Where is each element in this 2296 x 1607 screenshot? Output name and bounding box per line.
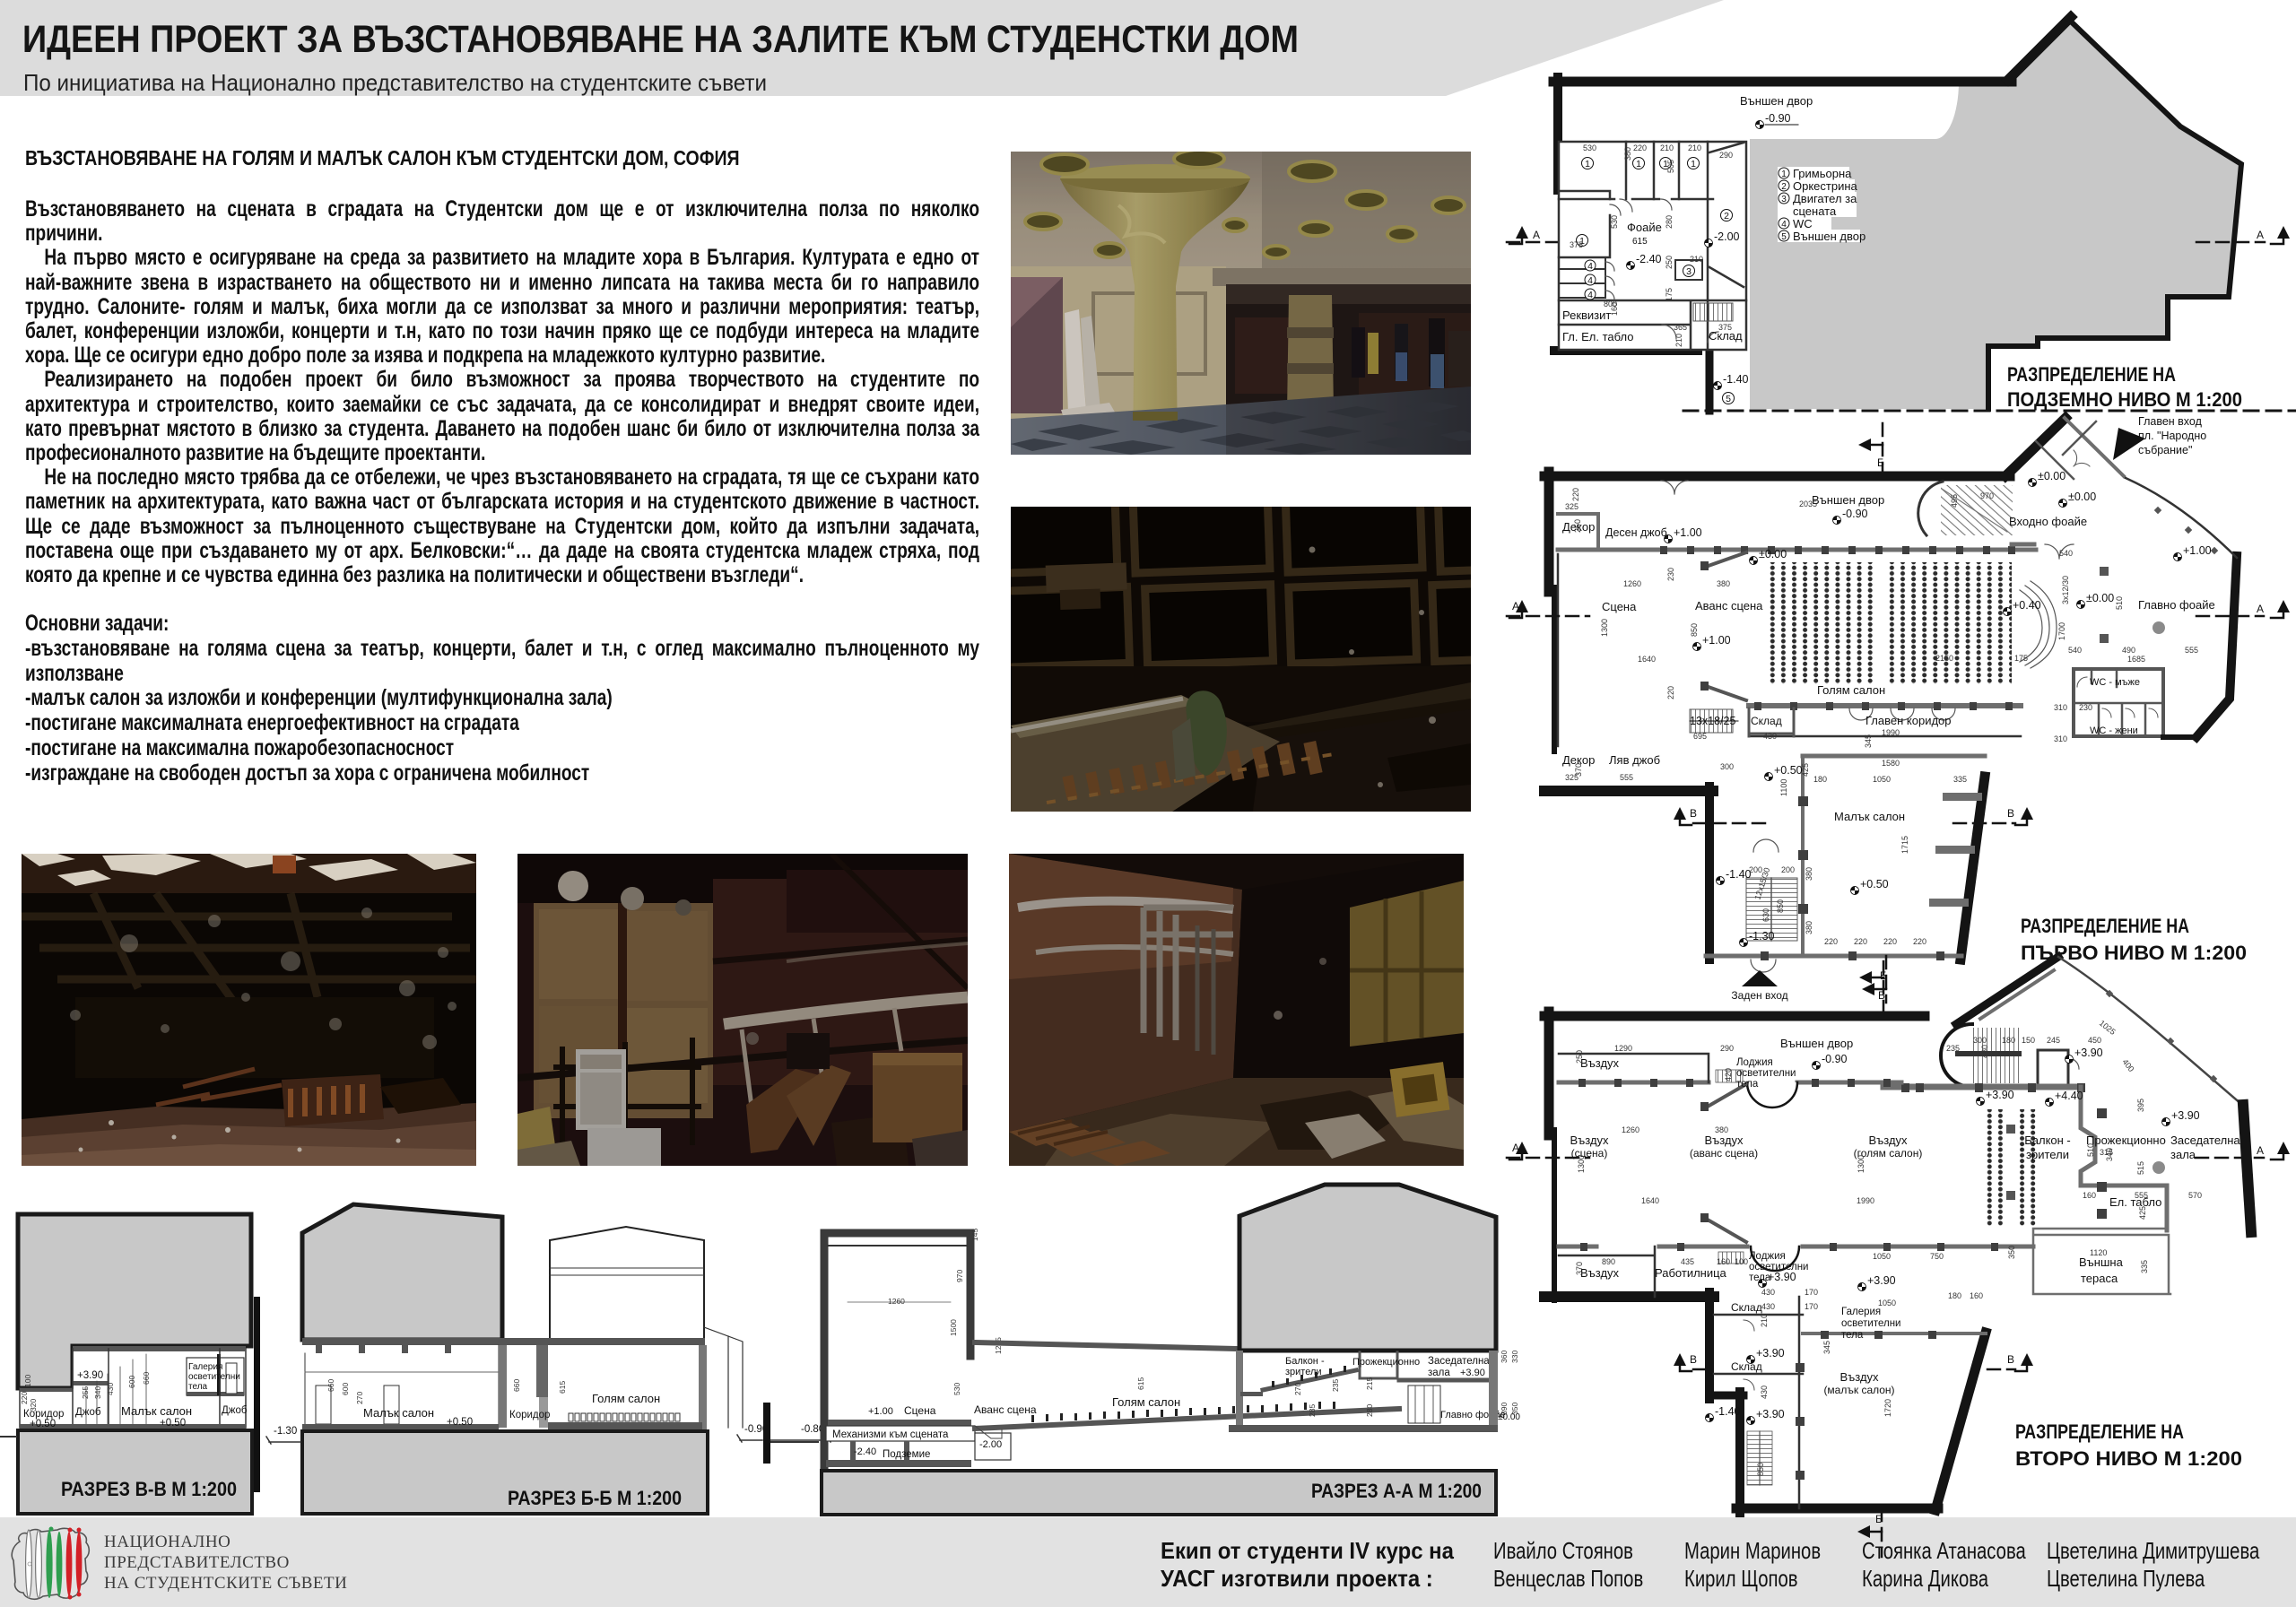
- svg-text:1120: 1120: [2090, 1248, 2107, 1257]
- svg-text:2150: 2150: [1935, 654, 1953, 663]
- svg-text:+3.90: +3.90: [2171, 1109, 2200, 1122]
- svg-text:±0.00: ±0.00: [2038, 470, 2066, 482]
- svg-text:-0.90: -0.90: [1765, 112, 1791, 125]
- svg-text:335: 335: [2140, 1260, 2149, 1273]
- svg-text:230: 230: [1666, 568, 1675, 581]
- svg-text:Коридор: Коридор: [509, 1410, 550, 1420]
- svg-text:750: 750: [1930, 1252, 1944, 1261]
- svg-text:Сцена: Сцена: [904, 1404, 936, 1417]
- svg-text:сцената: сцената: [1793, 204, 1837, 218]
- svg-text:Заден вход: Заден вход: [1731, 989, 1787, 1002]
- svg-text:1300: 1300: [1577, 1155, 1586, 1173]
- svg-text:+3.90: +3.90: [1867, 1274, 1896, 1287]
- svg-text:370: 370: [1575, 1262, 1584, 1275]
- svg-text:245: 245: [2047, 1036, 2060, 1045]
- svg-text:Въздух: Въздух: [1570, 1134, 1609, 1147]
- svg-text:Лоджия: Лоджия: [1736, 1057, 1773, 1068]
- svg-text:600: 600: [127, 1376, 136, 1388]
- svg-text:1260: 1260: [888, 1297, 905, 1306]
- svg-text:РАЗРЕЗ Б-Б М 1:200: РАЗРЕЗ Б-Б М 1:200: [508, 1487, 682, 1509]
- svg-text:Сцена: Сцена: [1602, 600, 1637, 613]
- svg-text:Склад: Склад: [1731, 1301, 1762, 1314]
- svg-text:290: 290: [1720, 1044, 1734, 1053]
- svg-text:Гл. Ел. табло: Гл. Ел. табло: [1562, 330, 1633, 343]
- svg-text:2: 2: [1724, 211, 1729, 222]
- svg-text:300: 300: [1720, 762, 1734, 771]
- svg-text:1990: 1990: [1857, 1196, 1874, 1205]
- svg-text:180: 180: [2002, 1036, 2015, 1045]
- svg-text:210: 210: [1688, 143, 1701, 152]
- svg-text:+3.90: +3.90: [1460, 1368, 1485, 1378]
- svg-text:615: 615: [558, 1381, 567, 1394]
- svg-text:890: 890: [1602, 1257, 1615, 1266]
- svg-text:270: 270: [355, 1392, 364, 1404]
- svg-text:осветителни: осветителни: [1841, 1318, 1900, 1329]
- svg-text:330: 330: [1510, 1351, 1519, 1363]
- svg-text:510: 510: [2115, 596, 2124, 610]
- svg-text:540: 540: [2059, 549, 2073, 558]
- svg-text:4: 4: [1587, 261, 1593, 272]
- svg-text:Заседателна: Заседателна: [1428, 1356, 1490, 1367]
- svg-text:200: 200: [1781, 865, 1795, 874]
- svg-text:Прожекционно: Прожекционно: [1352, 1357, 1420, 1368]
- svg-text:430: 430: [1761, 1288, 1775, 1297]
- svg-text:160: 160: [1717, 1257, 1730, 1266]
- svg-text:4: 4: [1587, 290, 1593, 300]
- svg-text:280: 280: [1665, 215, 1674, 229]
- svg-text:430: 430: [1760, 1385, 1769, 1399]
- svg-text:+0.50: +0.50: [160, 1418, 186, 1429]
- svg-text:-1.40: -1.40: [1726, 868, 1752, 881]
- svg-text:220: 220: [1824, 937, 1838, 946]
- svg-text:Фоайе: Фоайе: [1627, 221, 1662, 234]
- svg-text:Външен двор: Външен двор: [1740, 94, 1813, 108]
- svg-text:850: 850: [1776, 899, 1785, 913]
- svg-text:395: 395: [2136, 1099, 2145, 1112]
- svg-text:WC - мъже: WC - мъже: [2090, 677, 2140, 688]
- svg-text:220: 220: [1633, 143, 1647, 152]
- svg-text:4: 4: [1781, 220, 1787, 230]
- svg-text:570: 570: [2188, 1191, 2202, 1200]
- svg-text:160: 160: [1610, 302, 1619, 316]
- svg-text:285: 285: [1308, 1404, 1317, 1417]
- svg-text:Главен коридор: Главен коридор: [1865, 714, 1952, 727]
- svg-text:±0.00: ±0.00: [1759, 548, 1787, 560]
- svg-text:Въздух: Въздух: [1580, 1266, 1620, 1280]
- svg-text:220: 220: [1883, 937, 1897, 946]
- svg-text:170: 170: [1805, 1288, 1818, 1297]
- svg-text:+1.00: +1.00: [2183, 544, 2212, 557]
- svg-text:350: 350: [2007, 1246, 2016, 1259]
- svg-text:310: 310: [2054, 703, 2067, 712]
- svg-text:Десен джоб: Десен джоб: [1605, 526, 1667, 539]
- svg-text:380: 380: [1805, 867, 1813, 881]
- svg-text:555: 555: [2135, 1191, 2148, 1200]
- svg-text:А: А: [2257, 229, 2264, 241]
- svg-text:345: 345: [1864, 734, 1873, 748]
- svg-text:220: 220: [1854, 937, 1867, 946]
- svg-text:Голям салон: Голям салон: [1817, 683, 1885, 697]
- svg-text:(малък салон): (малък салон): [1823, 1384, 1894, 1396]
- svg-text:1640: 1640: [1638, 655, 1656, 664]
- svg-text:310: 310: [2054, 734, 2067, 743]
- svg-text:375: 375: [1570, 240, 1583, 249]
- svg-text:зрители: зрители: [1285, 1367, 1322, 1377]
- svg-text:430: 430: [106, 1383, 115, 1395]
- svg-text:-2.40: -2.40: [854, 1446, 876, 1457]
- svg-text:Балкон -: Балкон -: [1285, 1356, 1325, 1367]
- svg-text:зала: зала: [2170, 1148, 2196, 1161]
- svg-text:375: 375: [1718, 323, 1732, 332]
- svg-text:осветителни: осветителни: [1736, 1068, 1796, 1079]
- svg-text:+3.90: +3.90: [1756, 1347, 1785, 1359]
- svg-text:1290: 1290: [1614, 1044, 1632, 1053]
- svg-text:РАЗРЕЗ А-А М 1:200: РАЗРЕЗ А-А М 1:200: [1311, 1480, 1482, 1502]
- svg-text:1050: 1050: [1873, 775, 1891, 784]
- svg-text:тела: тела: [1841, 1330, 1864, 1341]
- svg-text:1100: 1100: [1779, 779, 1788, 796]
- svg-text:210: 210: [1674, 334, 1683, 347]
- svg-text:РАЗПРЕДЕЛЕНИЕ НА: РАЗПРЕДЕЛЕНИЕ НА: [2007, 363, 2176, 386]
- svg-text:А: А: [2257, 603, 2264, 615]
- svg-text:Оркестрина: Оркестрина: [1793, 179, 1858, 193]
- svg-text:230: 230: [2079, 703, 2092, 712]
- svg-text:1050: 1050: [1873, 1252, 1891, 1261]
- svg-text:695: 695: [1693, 732, 1707, 741]
- svg-text:970: 970: [1980, 491, 1994, 500]
- svg-text:-1.30: -1.30: [1749, 930, 1775, 942]
- svg-text:-1.30: -1.30: [274, 1426, 297, 1437]
- svg-text:Галерия: Галерия: [188, 1362, 222, 1372]
- svg-text:660: 660: [512, 1379, 521, 1392]
- svg-text:365: 365: [1674, 323, 1687, 332]
- svg-text:зрители: зрители: [2026, 1148, 2069, 1161]
- svg-text:300: 300: [1973, 1036, 1987, 1045]
- svg-text:1700: 1700: [2057, 622, 2066, 640]
- svg-text:Външен двор: Външен двор: [1812, 493, 1884, 507]
- svg-text:1300: 1300: [1857, 1155, 1865, 1173]
- svg-text:Гримьорна: Гримьорна: [1793, 167, 1852, 180]
- svg-text:-0.90: -0.90: [1822, 1053, 1848, 1065]
- svg-text:ВТОРО НИВО М 1:200: ВТОРО НИВО М 1:200: [2015, 1447, 2242, 1470]
- svg-text:255: 255: [81, 1386, 90, 1399]
- svg-text:+0.40: +0.40: [2013, 599, 2041, 612]
- svg-text:Голям салон: Голям салон: [1112, 1395, 1180, 1409]
- svg-text:380: 380: [1623, 147, 1632, 161]
- svg-text:660: 660: [142, 1372, 151, 1385]
- svg-text:+1.00: +1.00: [1674, 526, 1702, 539]
- svg-text:В: В: [2007, 807, 2014, 820]
- svg-text:970: 970: [955, 1270, 964, 1282]
- svg-text:425: 425: [1801, 763, 1810, 777]
- svg-text:340: 340: [2105, 1148, 2114, 1161]
- svg-text:380: 380: [1715, 1125, 1728, 1134]
- svg-text:Галерия: Галерия: [1841, 1307, 1881, 1317]
- svg-text:Б: Б: [1877, 456, 1884, 469]
- svg-text:515: 515: [2136, 1161, 2145, 1175]
- svg-text:555: 555: [2185, 646, 2198, 655]
- svg-text:170: 170: [1805, 1302, 1818, 1311]
- svg-text:Работилница: Работилница: [1655, 1266, 1727, 1280]
- svg-text:+3.90: +3.90: [1756, 1408, 1785, 1420]
- svg-text:Малък салон: Малък салон: [363, 1406, 434, 1420]
- svg-text:540: 540: [2068, 646, 2082, 655]
- svg-text:-1.40: -1.40: [1723, 373, 1749, 386]
- svg-text:505: 505: [1666, 160, 1675, 173]
- svg-text:340: 340: [93, 1386, 102, 1399]
- svg-text:+0.50: +0.50: [447, 1417, 473, 1428]
- svg-text:събрание": събрание": [2138, 444, 2192, 456]
- svg-text:Аванс сцена: Аванс сцена: [1695, 599, 1763, 612]
- svg-text:1260: 1260: [1623, 579, 1641, 588]
- svg-text:495: 495: [1950, 494, 1959, 508]
- svg-text:1640: 1640: [1641, 1196, 1659, 1205]
- svg-text:Реквизит: Реквизит: [1562, 308, 1611, 322]
- svg-text:350: 350: [1510, 1403, 1519, 1415]
- svg-text:+1.00: +1.00: [1702, 634, 1731, 647]
- svg-text:зала: зала: [1428, 1368, 1450, 1378]
- svg-text:Аванс сцена: Аванс сцена: [974, 1403, 1037, 1416]
- svg-text:тела: тела: [188, 1382, 208, 1392]
- svg-text:345: 345: [1822, 1341, 1831, 1354]
- svg-text:325: 325: [1565, 502, 1578, 511]
- svg-text:435: 435: [1681, 1257, 1694, 1266]
- svg-text:1685: 1685: [2127, 655, 2145, 664]
- svg-text:530: 530: [1583, 143, 1596, 152]
- svg-text:Въздух: Въздух: [1580, 1056, 1620, 1070]
- svg-text:290: 290: [1719, 151, 1733, 160]
- svg-text:осветителни: осветителни: [188, 1372, 240, 1382]
- svg-text:1025: 1025: [2098, 1019, 2118, 1037]
- svg-text:+4.40: +4.40: [2055, 1090, 2083, 1102]
- svg-text:400: 400: [2120, 1057, 2135, 1073]
- svg-text:Ляв джоб: Ляв джоб: [1609, 753, 1660, 767]
- svg-text:пл. "Народно: пл. "Народно: [2138, 430, 2206, 442]
- svg-text:145: 145: [970, 1229, 979, 1241]
- svg-text:220: 220: [1913, 937, 1926, 946]
- svg-text:В: В: [2007, 1353, 2014, 1366]
- svg-text:РАЗРЕЗ В-В М 1:200: РАЗРЕЗ В-В М 1:200: [61, 1478, 237, 1500]
- svg-text:380: 380: [1805, 921, 1813, 934]
- svg-text:215: 215: [1365, 1377, 1374, 1390]
- svg-text:210: 210: [1760, 1314, 1769, 1327]
- svg-text:160: 160: [2083, 1191, 2096, 1200]
- svg-text:В: В: [1690, 1353, 1697, 1366]
- svg-text:210: 210: [1660, 143, 1674, 152]
- svg-text:Склад: Склад: [1751, 715, 1782, 727]
- svg-text:Б: Б: [1875, 1513, 1883, 1525]
- svg-text:555: 555: [1620, 773, 1633, 782]
- svg-text:320: 320: [29, 1399, 38, 1412]
- svg-text:осветителни: осветителни: [1749, 1262, 1808, 1273]
- svg-text:370: 370: [1574, 763, 1583, 777]
- svg-text:Въздух: Въздух: [1839, 1370, 1879, 1384]
- svg-text:Двигател за: Двигател за: [1793, 192, 1857, 205]
- svg-text:Подземие: Подземие: [883, 1449, 930, 1460]
- svg-text:510: 510: [2086, 1143, 2095, 1157]
- svg-text:180: 180: [1948, 1291, 1961, 1300]
- svg-text:±0.00: ±0.00: [2086, 592, 2114, 604]
- svg-text:(аванс сцена): (аванс сцена): [1690, 1147, 1758, 1160]
- svg-text:А: А: [1512, 1142, 1519, 1154]
- svg-text:270: 270: [1293, 1383, 1302, 1395]
- svg-text:тела: тела: [1749, 1273, 1771, 1283]
- svg-text:430: 430: [1763, 732, 1777, 741]
- svg-text:+1.00: +1.00: [868, 1406, 893, 1417]
- svg-text:530: 530: [952, 1383, 961, 1395]
- svg-text:А: А: [1512, 600, 1519, 612]
- svg-text:3: 3: [1781, 195, 1787, 204]
- svg-text:175: 175: [1665, 288, 1674, 301]
- svg-text:235: 235: [1331, 1379, 1340, 1392]
- svg-text:5: 5: [1781, 232, 1787, 242]
- svg-text:Джоб: Джоб: [222, 1405, 248, 1416]
- svg-text:Външна: Външна: [2079, 1255, 2124, 1269]
- svg-text:600: 600: [341, 1383, 350, 1395]
- svg-text:210: 210: [1690, 255, 1703, 264]
- svg-text:335: 335: [1953, 775, 1967, 784]
- svg-text:1050: 1050: [1878, 1299, 1896, 1307]
- svg-text:1: 1: [1691, 159, 1696, 169]
- svg-text:430: 430: [1761, 1302, 1775, 1311]
- svg-text:425: 425: [2138, 1206, 2147, 1220]
- svg-text:850: 850: [1690, 623, 1699, 637]
- svg-text:420: 420: [1724, 1068, 1733, 1081]
- svg-text:850: 850: [1756, 1463, 1765, 1476]
- svg-text:1: 1: [1585, 159, 1590, 169]
- svg-text:1: 1: [1636, 159, 1641, 169]
- svg-text:Лоджия: Лоджия: [1749, 1251, 1786, 1262]
- svg-text:2035: 2035: [1799, 499, 1817, 508]
- svg-text:1500: 1500: [949, 1319, 958, 1336]
- svg-text:Малък салон: Малък салон: [1834, 810, 1905, 823]
- svg-text:250: 250: [1573, 519, 1582, 533]
- svg-text:220: 220: [1571, 488, 1580, 501]
- svg-text:-2.00: -2.00: [1714, 230, 1740, 243]
- svg-text:+0.50: +0.50: [1860, 878, 1889, 890]
- svg-text:1715: 1715: [1900, 836, 1909, 854]
- svg-text:2: 2: [1781, 182, 1787, 192]
- svg-text:-2.40: -2.40: [1636, 253, 1662, 265]
- svg-text:Въздух: Въздух: [1704, 1134, 1744, 1147]
- svg-text:4: 4: [1587, 275, 1593, 286]
- svg-text:490: 490: [2122, 646, 2135, 655]
- svg-text:Главно фоайе: Главно фоайе: [2138, 598, 2215, 612]
- svg-text:100: 100: [1735, 1257, 1748, 1266]
- svg-text:РАЗПРЕДЕЛЕНИЕ НА: РАЗПРЕДЕЛЕНИЕ НА: [2021, 915, 2189, 937]
- svg-text:Голям салон: Голям салон: [592, 1392, 660, 1405]
- svg-text:±0.00: ±0.00: [2068, 491, 2096, 503]
- svg-text:160: 160: [1970, 1291, 1983, 1300]
- svg-text:В: В: [1690, 807, 1697, 820]
- svg-text:WC - жени: WC - жени: [2090, 725, 2138, 736]
- svg-text:+0.50: +0.50: [1774, 764, 1803, 777]
- svg-text:660: 660: [326, 1379, 335, 1392]
- svg-text:Входно фоайе: Входно фоайе: [2009, 515, 2087, 528]
- svg-text:тела: тела: [1736, 1079, 1759, 1090]
- svg-text:530: 530: [1610, 215, 1619, 229]
- svg-text:Прожекционно: Прожекционно: [2086, 1134, 2166, 1147]
- svg-text:Малък салон: Малък салон: [121, 1404, 192, 1418]
- svg-text:-2.00: -2.00: [979, 1439, 1002, 1450]
- svg-text:3: 3: [1686, 266, 1692, 277]
- svg-text:1260: 1260: [1622, 1125, 1639, 1134]
- svg-text:450: 450: [2088, 1036, 2101, 1045]
- svg-text:Механизми към сцената: Механизми към сцената: [832, 1429, 949, 1440]
- svg-text:250: 250: [1575, 1050, 1584, 1064]
- svg-text:150: 150: [2022, 1036, 2035, 1045]
- svg-text:1720: 1720: [1883, 1399, 1892, 1417]
- svg-text:+3.90: +3.90: [1986, 1089, 2014, 1101]
- svg-text:WC: WC: [1793, 217, 1813, 230]
- svg-text:Балкон -: Балкон -: [2024, 1134, 2071, 1147]
- svg-text:250: 250: [1665, 256, 1674, 269]
- svg-text:Външен двор: Външен двор: [1780, 1037, 1853, 1050]
- svg-text:тераса: тераса: [2081, 1272, 2118, 1285]
- svg-text:А: А: [1533, 229, 1540, 241]
- svg-text:360: 360: [1500, 1351, 1509, 1363]
- svg-text:175: 175: [2014, 654, 2028, 663]
- svg-text:Джоб: Джоб: [75, 1407, 101, 1418]
- svg-text:+3.90: +3.90: [1768, 1271, 1796, 1283]
- svg-text:Б: Б: [1878, 989, 1885, 1002]
- svg-text:1580: 1580: [1882, 759, 1900, 768]
- svg-text:100: 100: [23, 1375, 32, 1387]
- svg-text:5: 5: [1726, 394, 1731, 404]
- svg-text:280: 280: [1365, 1404, 1374, 1417]
- svg-text:3x12/30: 3x12/30: [2061, 576, 2070, 604]
- svg-text:+3.90: +3.90: [77, 1370, 103, 1381]
- svg-text:630: 630: [1761, 908, 1770, 922]
- svg-text:А: А: [2257, 1144, 2264, 1157]
- svg-text:+0.50: +0.50: [30, 1419, 56, 1429]
- svg-text:380: 380: [1717, 579, 1730, 588]
- svg-text:1: 1: [1781, 169, 1787, 179]
- svg-text:1300: 1300: [1600, 619, 1609, 637]
- svg-text:Склад: Склад: [1731, 1360, 1762, 1373]
- svg-text:615: 615: [1632, 237, 1648, 247]
- svg-text:220: 220: [1666, 686, 1675, 699]
- svg-text:РАЗПРЕДЕЛЕНИЕ НА: РАЗПРЕДЕЛЕНИЕ НА: [2015, 1420, 2184, 1443]
- svg-text:+3.90: +3.90: [2074, 1047, 2103, 1059]
- svg-text:390: 390: [1500, 1403, 1509, 1415]
- svg-text:-1.40: -1.40: [1715, 1405, 1741, 1418]
- svg-text:220: 220: [20, 1392, 29, 1404]
- svg-text:235: 235: [1946, 1044, 1960, 1053]
- svg-text:Въздух: Въздух: [1868, 1134, 1908, 1147]
- svg-text:ПОДЗЕМНО НИВО М 1:200: ПОДЗЕМНО НИВО М 1:200: [2007, 388, 2242, 411]
- svg-text:1990: 1990: [1882, 728, 1900, 737]
- svg-text:480: 480: [1980, 1045, 1989, 1058]
- svg-text:Заседателна: Заседателна: [2170, 1134, 2240, 1147]
- svg-text:Външен двор: Външен двор: [1793, 230, 1865, 243]
- svg-text:180: 180: [1813, 775, 1827, 784]
- svg-text:-0.90: -0.90: [1842, 508, 1868, 520]
- svg-text:Главен вход: Главен вход: [2138, 415, 2203, 428]
- svg-text:615: 615: [1136, 1377, 1145, 1390]
